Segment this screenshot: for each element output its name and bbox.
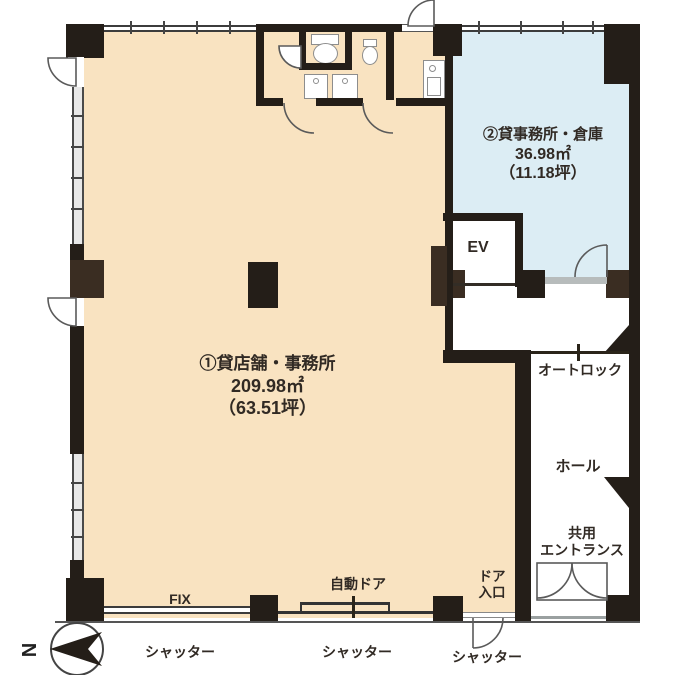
door-swing-arc (363, 103, 393, 133)
autolock-label: オートロック (528, 362, 632, 379)
door-entry-line1: ドア (468, 569, 516, 585)
office-room-label: ②貸事務所・倉庫 36.98㎡ （11.18坪） (468, 126, 618, 183)
door-swing-arc (279, 46, 301, 68)
door-swing-arc (284, 103, 314, 133)
floor-plan: N ①貸店舗・事務所 209.98㎡ （63.51坪） ②貸事務所・倉庫 36.… (0, 0, 673, 675)
shop-room-label: ①貸店舗・事務所 209.98㎡ （63.51坪） (180, 354, 355, 420)
office-room-area: 36.98㎡ (468, 145, 618, 164)
auto-door-label: 自動ドア (318, 576, 398, 593)
elevator-label: EV (455, 238, 501, 257)
door-swing-arc (48, 58, 76, 86)
shop-room-tsubo: （63.51坪） (180, 398, 355, 420)
entrance-label-line1: 共用 (528, 525, 636, 542)
door-swings-overlay: N (0, 0, 673, 675)
north-compass: N (19, 623, 103, 675)
shop-room-area: 209.98㎡ (180, 376, 355, 398)
office-room-name: ②貸事務所・倉庫 (468, 126, 618, 144)
office-room-tsubo: （11.18坪） (468, 164, 618, 183)
door-swing-arc (473, 618, 503, 648)
door-swing-arc (48, 298, 76, 326)
north-arrow-icon (50, 632, 102, 666)
shutter-label-center: シャッター (317, 644, 397, 661)
fix-window-label: FIX (160, 591, 200, 608)
shop-room-name: ①貸店舗・事務所 (180, 354, 355, 374)
door-swing-arc (408, 0, 434, 26)
door-entry-line2: 入口 (468, 585, 516, 601)
hall-label: ホール (540, 458, 616, 476)
entrance-label: 共用 エントランス (528, 525, 636, 559)
entrance-label-line2: エントランス (528, 542, 636, 559)
shutter-label-left: シャッター (140, 644, 220, 661)
shutter-label-right: シャッター (447, 649, 527, 666)
door-swing-arc (575, 245, 607, 277)
door-entry-label: ドア 入口 (468, 569, 516, 601)
compass-north-label: N (19, 643, 41, 657)
